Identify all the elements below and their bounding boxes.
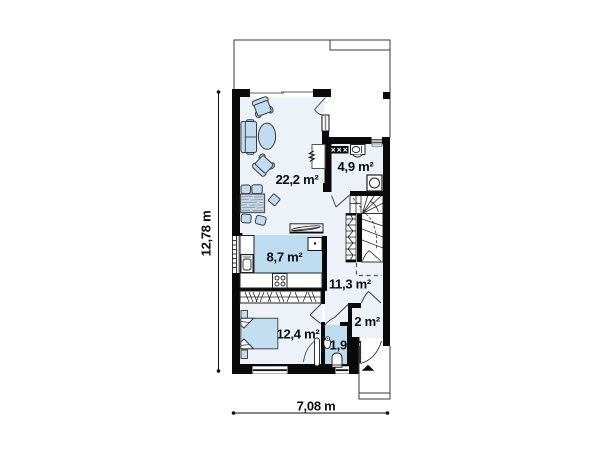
svg-text:8,7 m²: 8,7 m² [267, 249, 304, 264]
svg-text:12,78 m: 12,78 m [199, 211, 214, 257]
svg-text:4,9 m²: 4,9 m² [338, 159, 375, 174]
svg-text:2 m²: 2 m² [354, 314, 381, 329]
svg-text:7,08 m: 7,08 m [297, 398, 336, 413]
svg-text:11,3 m²: 11,3 m² [329, 277, 372, 292]
svg-text:22,2 m²: 22,2 m² [276, 172, 320, 187]
svg-text:12,4 m²: 12,4 m² [277, 326, 321, 341]
svg-text:1,9: 1,9 [330, 338, 347, 353]
